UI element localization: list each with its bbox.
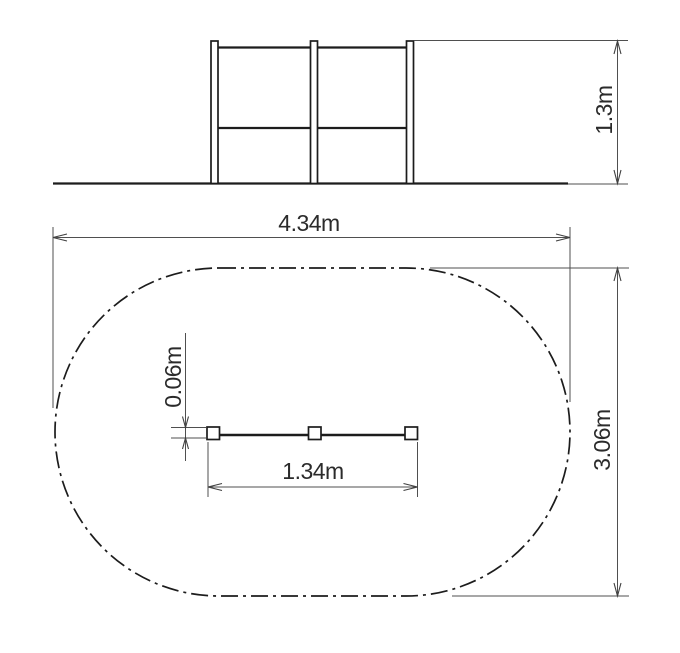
- fence-post-plan: [207, 427, 220, 440]
- fence-post-plan: [405, 427, 418, 440]
- area-depth-dimension: 3.06m: [430, 268, 629, 596]
- bar-length-dimension: 1.34m: [208, 442, 418, 497]
- bar-length-label: 1.34m: [282, 458, 343, 484]
- fence-post-plan: [309, 427, 322, 440]
- fence-post: [211, 41, 218, 184]
- fence-post: [407, 41, 414, 184]
- plan-view: 4.34m 3.06m 0.06m 1.34m: [53, 210, 629, 596]
- elevation-view: 1.3m: [53, 41, 628, 185]
- area-width-dimension: 4.34m: [53, 210, 570, 408]
- drawing-svg: 1.3m 4.34m 3.06m: [0, 0, 680, 653]
- technical-drawing: 1.3m 4.34m 3.06m: [0, 0, 680, 653]
- post-size-dimension: 0.06m: [160, 333, 206, 461]
- height-dimension: 1.3m: [414, 41, 628, 185]
- fence-post: [311, 41, 318, 184]
- area-width-label: 4.34m: [278, 210, 339, 236]
- height-dimension-label: 1.3m: [591, 85, 617, 134]
- post-size-label: 0.06m: [160, 346, 186, 407]
- area-depth-label: 3.06m: [589, 409, 615, 470]
